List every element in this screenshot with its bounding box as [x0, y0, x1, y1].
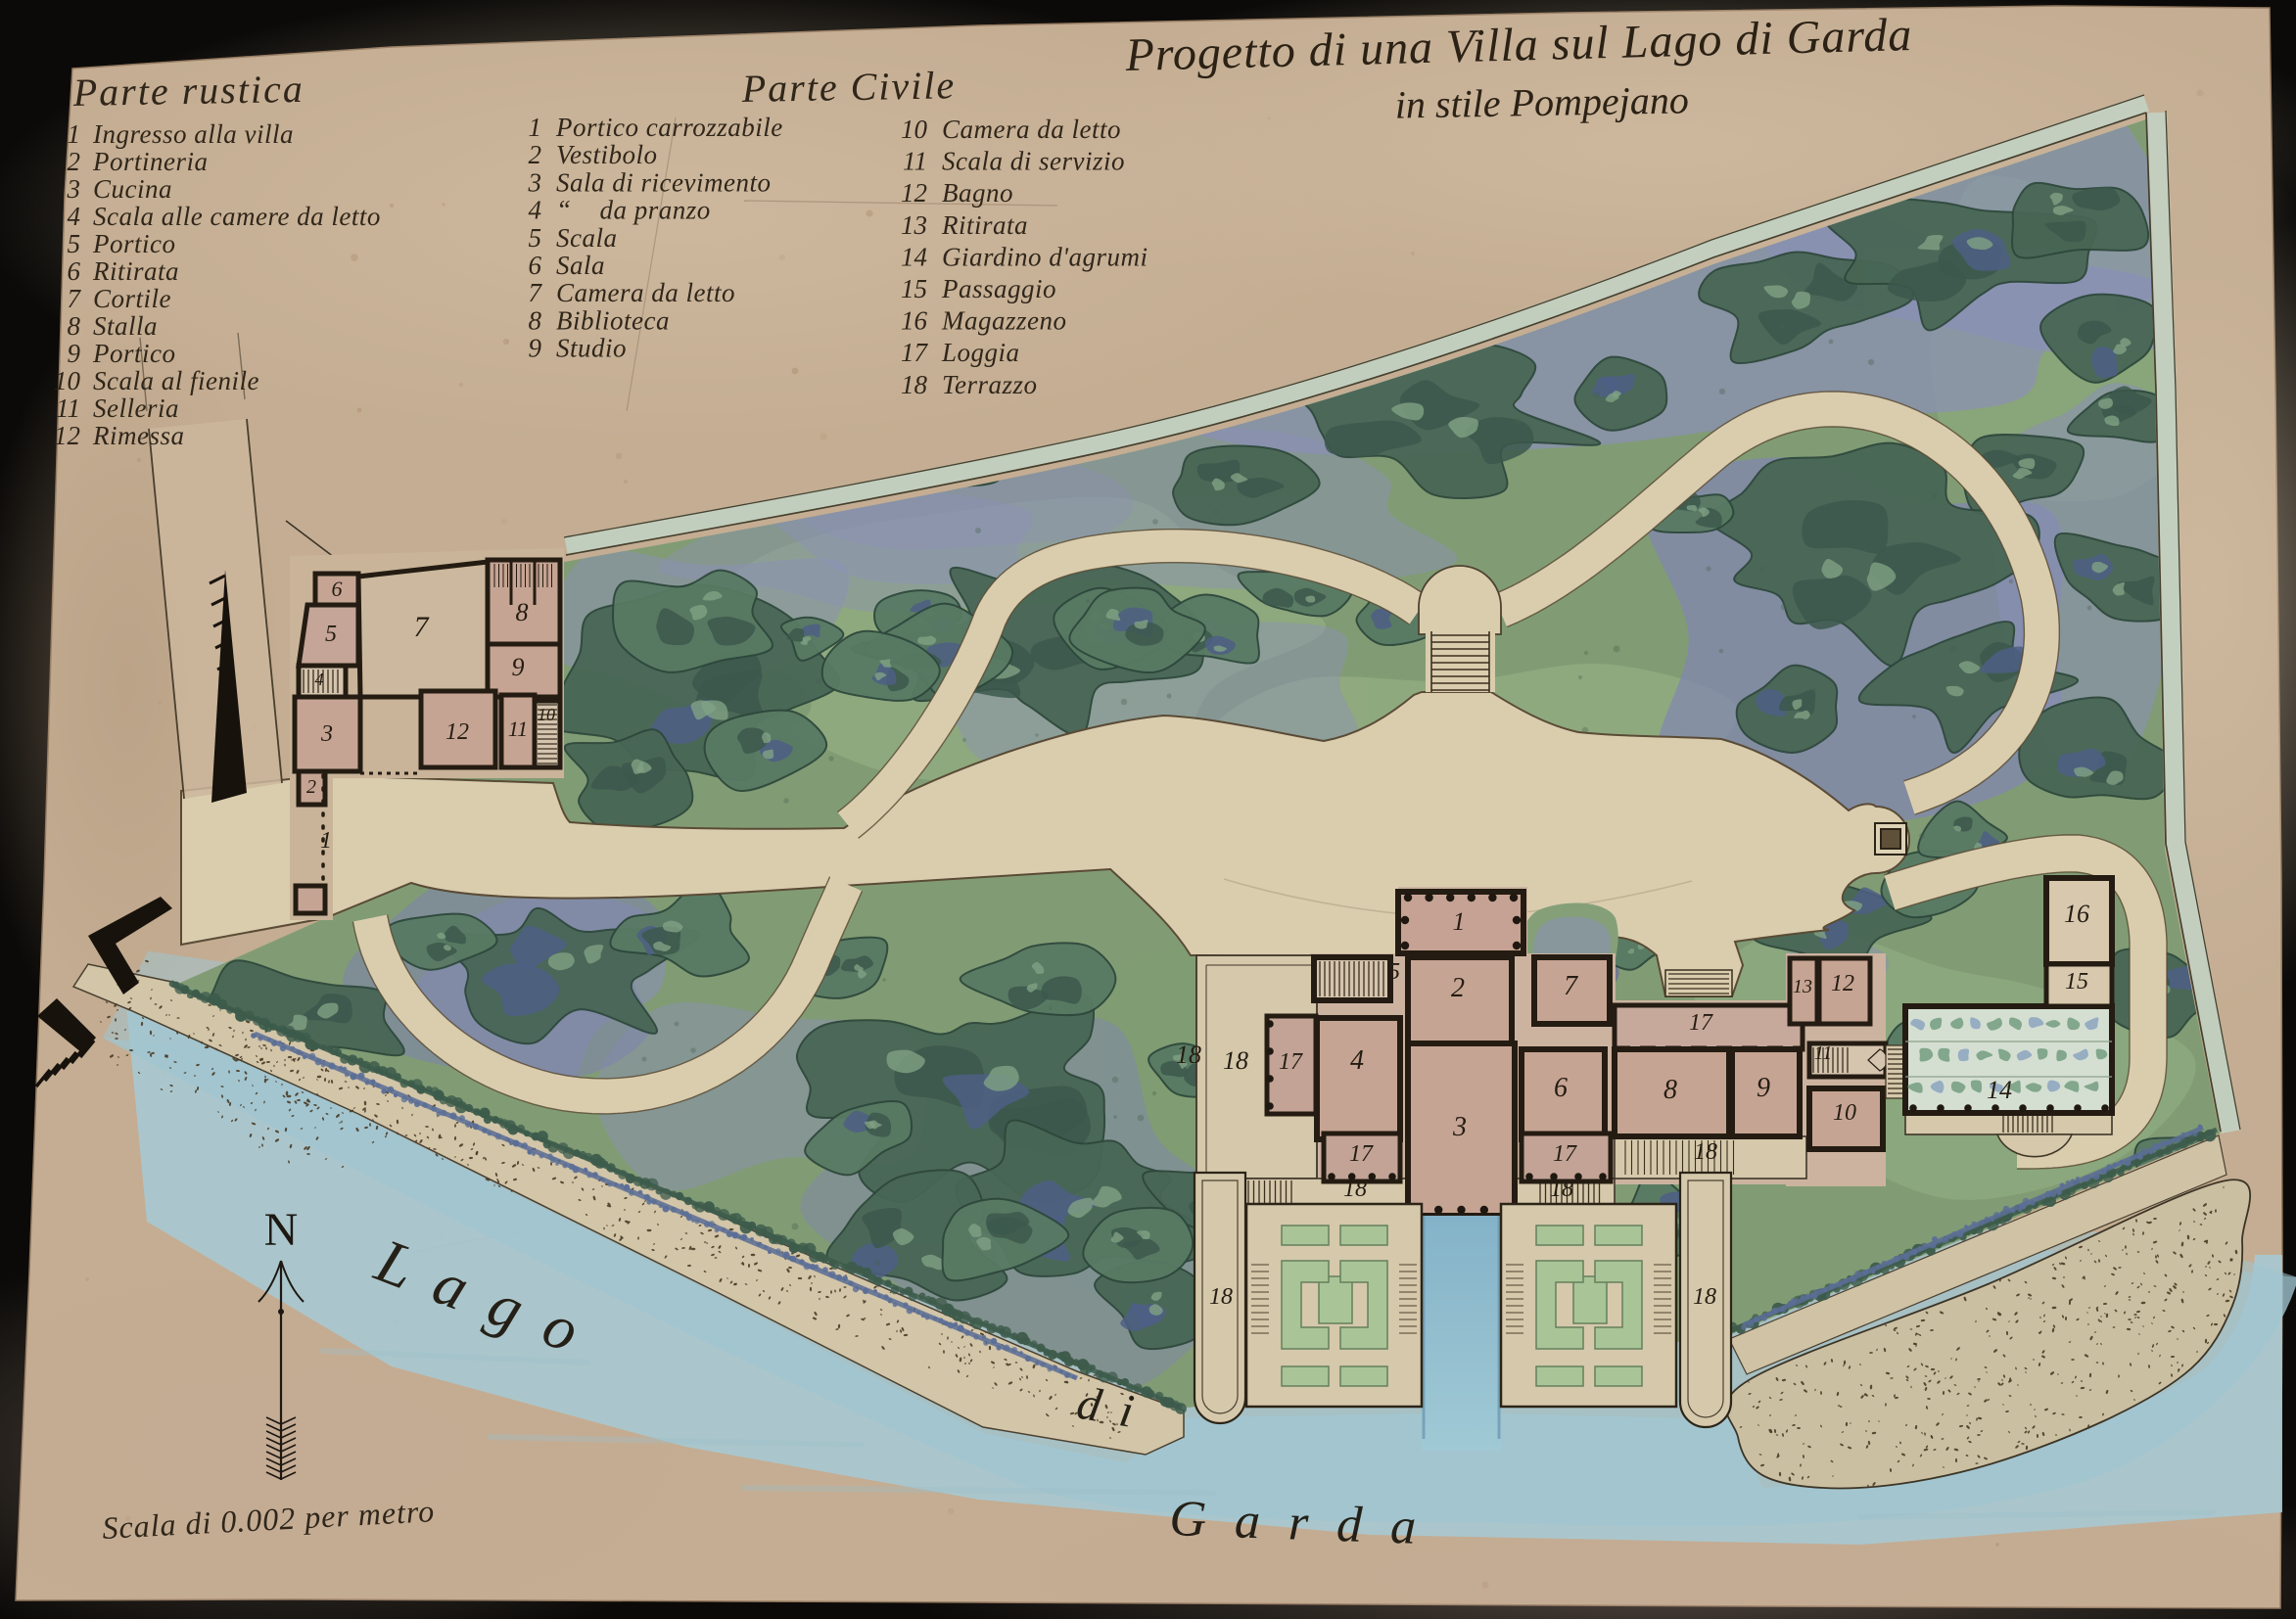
svg-text:17: 17: [1349, 1141, 1374, 1167]
svg-text:1: 1: [320, 828, 332, 854]
svg-text:Ritirata: Ritirata: [92, 256, 179, 286]
svg-text:Studio: Studio: [556, 334, 627, 363]
svg-text:Ritirata: Ritirata: [941, 210, 1028, 240]
svg-text:12: 12: [1831, 971, 1854, 996]
svg-text:Camera da letto: Camera da letto: [942, 115, 1121, 144]
svg-text:Giardino d'agrumi: Giardino d'agrumi: [942, 242, 1148, 271]
svg-text:18: 18: [1209, 1284, 1233, 1310]
svg-text:Camera da letto: Camera da letto: [556, 278, 735, 307]
svg-text:11: 11: [903, 147, 927, 176]
svg-text:17: 17: [1279, 1049, 1303, 1075]
svg-text:Cortile: Cortile: [93, 284, 171, 313]
svg-text:14: 14: [1987, 1076, 2012, 1104]
svg-text:15: 15: [901, 274, 927, 303]
svg-text:2: 2: [306, 776, 316, 798]
svg-text:Biblioteca: Biblioteca: [556, 305, 670, 335]
svg-text:17: 17: [901, 338, 929, 367]
svg-text:Sala: Sala: [556, 251, 605, 280]
svg-text:Parte Civile: Parte Civile: [740, 63, 956, 111]
svg-text:12: 12: [54, 421, 80, 450]
svg-text:18: 18: [1343, 1177, 1367, 1202]
svg-text:Portico carrozzabile: Portico carrozzabile: [555, 113, 783, 142]
svg-text:15: 15: [2065, 969, 2088, 995]
svg-text:8: 8: [516, 598, 529, 626]
svg-text:Passaggio: Passaggio: [941, 274, 1056, 303]
svg-text:14: 14: [901, 242, 927, 271]
svg-text:N: N: [264, 1204, 299, 1256]
svg-text:1: 1: [1453, 907, 1466, 936]
svg-text:d i: d i: [1073, 1377, 1142, 1439]
svg-text:13: 13: [1793, 976, 1812, 997]
svg-text:9: 9: [512, 653, 525, 681]
svg-text:10: 10: [538, 705, 555, 724]
svg-text:9: 9: [529, 334, 542, 363]
svg-text:8: 8: [68, 311, 81, 341]
svg-text:4: 4: [1350, 1045, 1364, 1076]
svg-text:12: 12: [901, 178, 927, 208]
svg-text:11: 11: [56, 393, 80, 423]
svg-text:18: 18: [901, 370, 928, 399]
svg-text:5: 5: [325, 622, 337, 647]
svg-text:9: 9: [1757, 1073, 1770, 1103]
svg-text:7: 7: [1564, 971, 1578, 1001]
svg-text:G a r d a: G a r d a: [1169, 1491, 1426, 1555]
svg-text:12: 12: [445, 719, 469, 745]
svg-text:7: 7: [529, 278, 543, 307]
svg-text:1: 1: [529, 113, 542, 142]
svg-text:Loggia: Loggia: [941, 338, 1020, 367]
svg-text:3: 3: [1452, 1112, 1467, 1142]
svg-text:Scala: Scala: [556, 223, 618, 253]
svg-text:3: 3: [67, 174, 81, 204]
svg-text:Stalla: Stalla: [93, 311, 158, 341]
svg-text:Portineria: Portineria: [92, 147, 209, 176]
svg-text:8: 8: [529, 305, 542, 335]
svg-text:16: 16: [901, 306, 928, 336]
svg-text:Bagno: Bagno: [942, 178, 1013, 208]
svg-text:2: 2: [68, 147, 81, 176]
svg-text:10: 10: [1833, 1100, 1856, 1126]
svg-text:18: 18: [1223, 1046, 1248, 1075]
svg-text:5: 5: [529, 223, 542, 253]
svg-text:6: 6: [1554, 1073, 1568, 1103]
svg-text:Rimessa: Rimessa: [92, 421, 185, 450]
svg-text:18: 18: [1694, 1139, 1717, 1165]
svg-text:Scala al fienile: Scala al fienile: [93, 366, 259, 395]
svg-text:in stile Pompejano: in stile Pompejano: [1394, 77, 1689, 126]
svg-text:5: 5: [68, 229, 81, 258]
svg-text:Portico: Portico: [92, 339, 176, 368]
svg-text:9: 9: [68, 339, 81, 368]
svg-text:18: 18: [1693, 1284, 1716, 1310]
svg-text:7: 7: [414, 611, 431, 643]
svg-text:6: 6: [332, 577, 343, 601]
svg-text:3: 3: [320, 721, 333, 747]
svg-text:Scala alle camere da letto: Scala alle camere da letto: [93, 202, 381, 231]
svg-text:10: 10: [54, 366, 81, 395]
svg-text:Sala di ricevimento: Sala di ricevimento: [556, 167, 771, 197]
svg-text:5: 5: [1388, 959, 1400, 985]
svg-text:Terrazzo: Terrazzo: [942, 370, 1038, 399]
svg-text:11: 11: [508, 717, 528, 741]
svg-text:4: 4: [315, 670, 324, 689]
svg-text:6: 6: [529, 251, 542, 280]
svg-text:Cucina: Cucina: [93, 174, 172, 204]
svg-text:2: 2: [529, 140, 542, 169]
svg-text:17: 17: [1689, 1010, 1713, 1036]
svg-text:“ da pranzo: “ da pranzo: [556, 196, 711, 225]
svg-text:Portico: Portico: [92, 229, 176, 258]
svg-text:Scala di servizio: Scala di servizio: [942, 147, 1125, 176]
svg-text:18: 18: [1176, 1041, 1201, 1069]
svg-text:18: 18: [1550, 1177, 1573, 1202]
svg-text:16: 16: [2064, 900, 2089, 928]
svg-text:6: 6: [68, 256, 81, 286]
svg-text:13: 13: [901, 210, 927, 240]
svg-text:7: 7: [68, 284, 82, 313]
svg-text:3: 3: [528, 167, 542, 197]
svg-text:2: 2: [1451, 973, 1465, 1003]
svg-text:4: 4: [68, 202, 81, 231]
svg-text:1: 1: [68, 119, 81, 149]
svg-text:4: 4: [529, 196, 542, 225]
svg-text:Ingresso alla villa: Ingresso alla villa: [92, 119, 294, 149]
svg-text:11: 11: [1814, 1042, 1833, 1064]
svg-text:Magazzeno: Magazzeno: [941, 306, 1067, 336]
svg-text:Vestibolo: Vestibolo: [556, 140, 658, 169]
svg-text:8: 8: [1663, 1075, 1677, 1105]
svg-text:Selleria: Selleria: [93, 393, 179, 423]
svg-text:10: 10: [901, 115, 928, 144]
svg-text:Parte rustica: Parte rustica: [71, 67, 305, 115]
svg-text:17: 17: [1553, 1141, 1577, 1167]
